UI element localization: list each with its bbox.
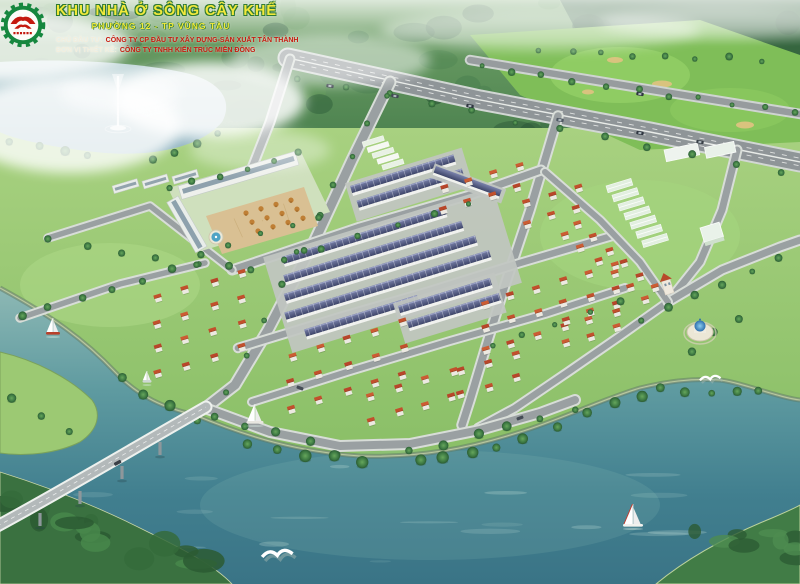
designer-name: CÔNG TY TNHH KIẾN TRÚC MIỀN ĐÔNG bbox=[120, 47, 256, 54]
project-location-subtitle: PHƯỜNG 12 - TP VŨNG TÀU bbox=[56, 21, 266, 31]
plaza-fountain bbox=[209, 230, 223, 244]
designer-label: ĐƠN VỊ THIẾT KẾ: bbox=[56, 47, 117, 54]
designer-credit-line: ĐƠN VỊ THIẾT KẾ:CÔNG TY TNHH KIẾN TRÚC M… bbox=[56, 47, 255, 54]
gear-emblem-logo-icon bbox=[0, 0, 46, 48]
project-title: KHU NHÀ Ở SÔNG CÂY KHẾ bbox=[56, 3, 266, 19]
investor-name: CÔNG TY CP ĐẦU TƯ XÂY DỰNG-SẢN XUẤT TÂN … bbox=[106, 37, 299, 44]
masterplan-scene bbox=[0, 0, 800, 584]
investor-label: CHỦ ĐẦU TƯ: bbox=[56, 37, 103, 44]
aerial-rendering-poster: KHU NHÀ Ở SÔNG CÂY KHẾ PHƯỜNG 12 - TP VŨ… bbox=[0, 0, 800, 584]
investor-credit-line: CHỦ ĐẦU TƯ:CÔNG TY CP ĐẦU TƯ XÂY DỰNG-SẢ… bbox=[56, 37, 299, 44]
